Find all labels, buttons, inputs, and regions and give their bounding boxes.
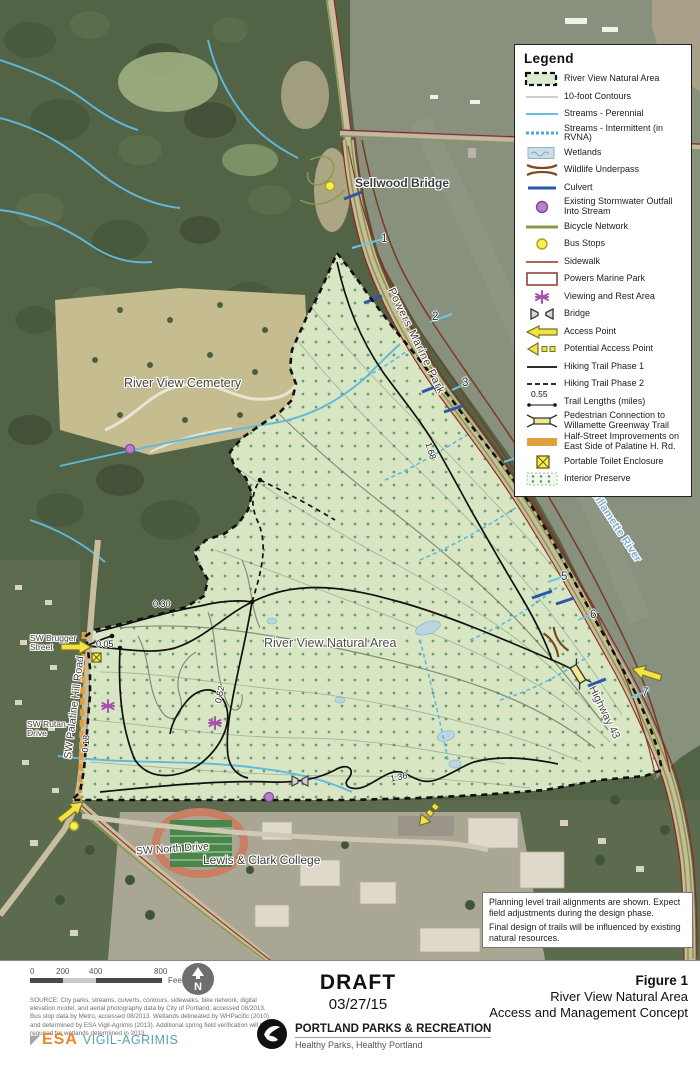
rvna-swatch-icon <box>522 71 564 87</box>
legend-item-label: Potential Access Point <box>564 344 653 354</box>
viewing-rest-area-icon <box>522 289 564 305</box>
river-point-number: 3 <box>462 377 468 389</box>
river-point-number: 1 <box>381 233 387 245</box>
draft-date: 03/27/15 <box>288 996 428 1013</box>
bus-stop-marker <box>326 182 335 191</box>
figure-line-2: Access and Management Concept <box>489 1005 688 1020</box>
interior-preserve-icon <box>522 471 564 487</box>
scale-tick: 800 <box>154 967 167 976</box>
esa-name: ESA <box>42 1031 78 1049</box>
legend-item: Bridge <box>522 306 686 322</box>
label-natural-area: River View Natural Area <box>264 636 396 650</box>
bus-stop-icon <box>522 236 564 252</box>
legend-items: River View Natural Area10-foot ContoursS… <box>522 71 686 487</box>
wetlands-icon <box>522 145 564 161</box>
access-point-icon <box>522 324 564 340</box>
river-point-number: 7 <box>642 687 648 699</box>
legend-item-label: Existing Stormwater Outfall Into Stream <box>564 197 686 217</box>
legend-item-label: Streams - Perennial <box>564 109 644 119</box>
pedestrian-connection-icon <box>522 413 564 429</box>
portable-toilet-marker <box>92 653 101 662</box>
river-point-number: 6 <box>590 609 596 621</box>
legend-item-label: Hiking Trail Phase 1 <box>564 362 644 372</box>
wildlife-underpass-icon <box>522 162 564 178</box>
legend-item-label: Portable Toilet Enclosure <box>564 457 663 467</box>
legend-item: Culvert <box>522 180 686 196</box>
legend-item-label: Half-Street Improvements on East Side of… <box>564 432 686 452</box>
stormwater-outfall-marker <box>265 793 274 802</box>
footer: 0 200 400 800 Feet N SOURCE: City parks,… <box>0 960 700 1082</box>
contour-icon <box>522 89 564 105</box>
legend-item-label: Culvert <box>564 183 593 193</box>
legend-item-label: Bicycle Network <box>564 222 628 232</box>
agency-tagline: Healthy Parks, Healthy Portland <box>295 1040 491 1050</box>
label-sellwood-bridge: Sellwood Bridge <box>355 176 449 190</box>
legend-title: Legend <box>524 51 686 66</box>
stream-intermittent-icon <box>522 125 564 141</box>
esa-logo: ◤ ESA VIGIL-AGRIMIS <box>30 1031 178 1049</box>
legend-item-label: 10-foot Contours <box>564 92 631 102</box>
legend-item-label: Interior Preserve <box>564 474 631 484</box>
draft-block: DRAFT 03/27/15 <box>288 971 428 1013</box>
residential-west <box>0 560 80 810</box>
legend-item-label: Wildlife Underpass <box>564 165 639 175</box>
legend-item: Existing Stormwater Outfall Into Stream <box>522 197 686 217</box>
figure-title-block: Figure 1 River View Natural Area Access … <box>489 973 688 1020</box>
legend-item-label: Bus Stops <box>564 239 605 249</box>
bridge-icon <box>522 306 564 322</box>
label-rutan-drive: SW Rutan Drive <box>27 720 73 738</box>
legend-box: Legend River View Natural Area10-foot Co… <box>514 44 692 497</box>
hiking-trail-phase-1-icon <box>522 359 564 375</box>
legend-item-label: River View Natural Area <box>564 74 659 84</box>
legend-item-label: Sidewalk <box>564 257 600 267</box>
note-box: Planning level trail alignments are show… <box>482 892 693 948</box>
legend-item: Powers Marine Park <box>522 271 686 287</box>
culvert-icon <box>522 180 564 196</box>
draft-label: DRAFT <box>288 971 428 995</box>
trail-length-label: 0.05 <box>96 639 114 649</box>
legend-item: Streams - Perennial <box>522 106 686 122</box>
legend-item: Interior Preserve <box>522 471 686 487</box>
trail-length-label: 0.30 <box>153 599 171 609</box>
bicycle-network-icon <box>522 219 564 235</box>
stormwater-outfall-icon <box>522 199 564 215</box>
river-point-number: 5 <box>561 571 567 583</box>
esa-subname: VIGIL-AGRIMIS <box>83 1033 178 1047</box>
legend-item: 10-foot Contours <box>522 89 686 105</box>
river-point-number: 2 <box>432 311 438 323</box>
legend-item-label: Wetlands <box>564 148 601 158</box>
legend-item: Portable Toilet Enclosure <box>522 454 686 470</box>
figure-line-1: River View Natural Area <box>489 989 688 1004</box>
map-canvas: Sellwood Bridge River View Cemetery Rive… <box>0 0 700 960</box>
legend-item: Wildlife Underpass <box>522 162 686 178</box>
potential-access-point-icon <box>522 341 564 357</box>
legend-item: Viewing and Rest Area <box>522 289 686 305</box>
legend-item-label: Access Point <box>564 327 616 337</box>
note-line-1: Planning level trail alignments are show… <box>489 897 686 918</box>
legend-item: River View Natural Area <box>522 71 686 87</box>
legend-item-label: Bridge <box>564 309 590 319</box>
legend-item-label: Pedestrian Connection to Willamette Gree… <box>564 411 686 431</box>
legend-item: Pedestrian Connection to Willamette Gree… <box>522 411 686 431</box>
trail-length-label: 0.18 <box>80 735 91 753</box>
label-river-view-cemetery: River View Cemetery <box>124 376 241 390</box>
legend-item: Streams - Intermittent (in RVNA) <box>522 124 686 144</box>
agency-name: PORTLAND PARKS & RECREATION <box>295 1023 491 1038</box>
esa-corner-mark-icon: ◤ <box>30 1032 40 1048</box>
north-letter: N <box>194 981 202 993</box>
legend-item: Wetlands <box>522 145 686 161</box>
figure-page: Sellwood Bridge River View Cemetery Rive… <box>0 0 700 1082</box>
scale-tick: 400 <box>89 967 102 976</box>
stream-perennial-icon <box>522 106 564 122</box>
figure-number: Figure 1 <box>489 973 688 988</box>
half-street-icon <box>522 434 564 450</box>
legend-item: Hiking Trail Phase 1 <box>522 359 686 375</box>
legend-item: Sidewalk <box>522 254 686 270</box>
trail-length-value: 0.55 <box>531 389 548 399</box>
legend-item-label: Streams - Intermittent (in RVNA) <box>564 124 686 144</box>
portable-toilet-icon <box>522 454 564 470</box>
parks-leaf-logo-icon <box>256 1018 288 1055</box>
north-arrow-icon: N <box>180 961 216 1002</box>
legend-item-label: Hiking Trail Phase 2 <box>564 379 644 389</box>
scale-tick: 0 <box>30 967 34 976</box>
bus-stop-marker <box>70 822 79 831</box>
legend-item: Bus Stops <box>522 236 686 252</box>
legend-item-label: Viewing and Rest Area <box>564 292 655 302</box>
trail-length-icon: 0.55 <box>522 394 564 410</box>
sidewalk-icon <box>522 254 564 270</box>
legend-item: 0.55Trail Lengths (miles) <box>522 394 686 410</box>
label-lewis-clark: Lewis & Clark College <box>203 853 320 867</box>
legend-item: Potential Access Point <box>522 341 686 357</box>
legend-item: Access Point <box>522 324 686 340</box>
scale-tick: 200 <box>56 967 69 976</box>
powers-marine-park-icon <box>522 271 564 287</box>
label-brugger-street: SW Brugger Street <box>30 634 86 652</box>
legend-item: Bicycle Network <box>522 219 686 235</box>
legend-item: Half-Street Improvements on East Side of… <box>522 432 686 452</box>
legend-item-label: Powers Marine Park <box>564 274 645 284</box>
note-line-2: Final design of trails will be influence… <box>489 922 686 943</box>
stormwater-outfall-marker <box>126 445 135 454</box>
agency-block: PORTLAND PARKS & RECREATION Healthy Park… <box>256 1018 491 1055</box>
legend-item-label: Trail Lengths (miles) <box>564 397 645 407</box>
